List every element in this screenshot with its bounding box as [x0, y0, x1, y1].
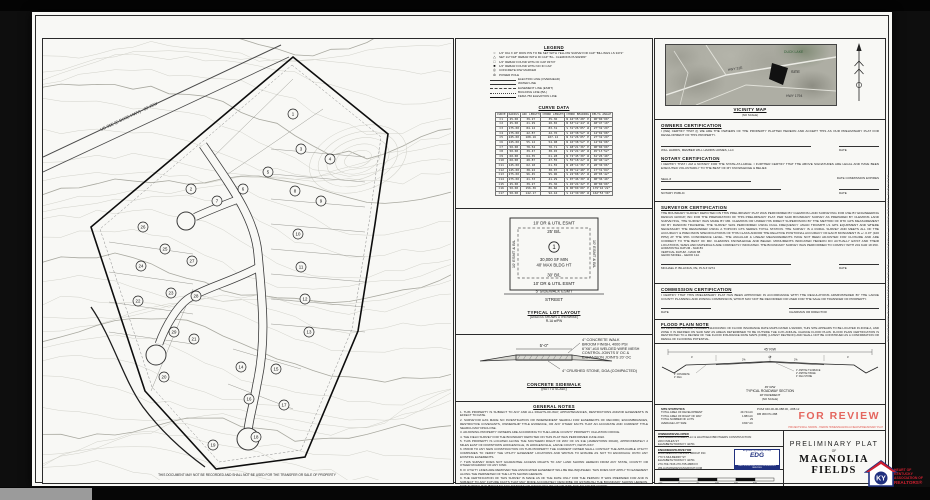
svg-text:25: 25: [163, 247, 168, 252]
thick-line-sample: [490, 97, 516, 98]
legend-symbol-item: ⊘POWER POLE: [490, 74, 644, 78]
stats-row: AVERAGE LOT SIZE0.847 AC: [661, 422, 753, 426]
lot-side-left: 10' ESMT & B/L: [511, 239, 516, 268]
edge-vertical-text: PRELIMINARY PLAT - MAGNOLIA FIELDS - HOD…: [886, 38, 890, 478]
lot-circle: 13: [304, 327, 314, 337]
section-sidewalk: 5'-0" 4" CONCRETE WALK BROOM FINISH, 400…: [456, 335, 652, 402]
sidewalk-detail-diagram: 5'-0" 4" CONCRETE WALK BROOM FINISH, 400…: [456, 337, 652, 381]
lot-circle: 10: [293, 229, 303, 239]
legend-line-item: WATER LINE: [490, 82, 644, 86]
lot-circle: 28: [191, 291, 201, 301]
svg-text:14: 14: [239, 365, 244, 370]
notary-date-line: DATE: [839, 189, 879, 195]
svg-text:16: 16: [247, 397, 252, 402]
north-arrow-icon: [853, 43, 865, 105]
lot-circle: 6: [238, 184, 248, 194]
legend-line-item: EASEMENT LINE (ESMT): [490, 87, 644, 91]
map-note: THIS DOCUMENT MAY NOT BE RECORDED AND SH…: [158, 473, 337, 477]
sidewalk-note-bottom: 4" CRUSHED STONE, DGA (COMPACTED): [562, 369, 638, 373]
curve-cell: S 12°30'08" W: [565, 191, 591, 196]
owners-signature-line: WILL HARRIS, MEMBER WILL HARRIS HOMES, L…: [661, 146, 811, 152]
section-commission-cert: COMMISSION CERTIFICATION I CERTIFY THAT …: [655, 284, 885, 320]
sheet-edge-strip: PRELIMINARY PLAT - MAGNOLIA FIELDS - HOD…: [886, 38, 892, 482]
commission-date-line: DATE: [661, 308, 711, 314]
commission-chairman-line: CHAIRMAN OR DIRECTOR: [789, 308, 879, 314]
sidewalk-dim: 5'-0": [540, 343, 549, 348]
section-stats: SITE STATISTICS TOTAL AREA OF DEVELOPMEN…: [655, 405, 885, 431]
site-plan-panel: US 31E (E DIXIE HWY) - 80' R/W: [42, 38, 454, 484]
vicinity-site-label: SITE: [791, 69, 800, 74]
roadway-left-note-1: 4" CONCRETE: [674, 374, 690, 376]
vicinity-caption: VICINITY MAP: [665, 107, 835, 112]
lot-circle: 17: [279, 400, 289, 410]
owners-cert-body: I (WE) CERTIFY THAT (I) WE ARE THE OWNER…: [661, 129, 879, 137]
lot-circle: 16: [244, 394, 254, 404]
roadway-dim-right: 4': [847, 355, 849, 359]
lot-rear-bl: 30' B/L: [547, 272, 561, 277]
lot-circle: 3: [296, 144, 306, 154]
surveyor-cert-body: THE BOUNDARY SURVEY DEPICTED ON THIS PRE…: [661, 211, 879, 247]
lot-circle: 18: [251, 432, 261, 442]
lot-circle: 7: [212, 196, 222, 206]
legend-item-text: FEMA 750 ELEVATION LINE: [518, 95, 557, 99]
roadway-note-3: 4" DGA STONE: [796, 375, 813, 378]
lot-side-right: 10' ESMT & B/L: [592, 240, 597, 269]
lot-circle: 5: [263, 167, 273, 177]
for-review-stamp: FOR REVIEW: [798, 410, 880, 422]
roadway-dim-center: 18': [768, 355, 772, 359]
solid-line-sample: [490, 80, 516, 81]
lot-circle: 11: [296, 262, 306, 272]
realtors-ky-badge: KY: [876, 476, 886, 483]
section-vicinity: SITE DUCK LAKE HWY 31E HWY 1794 VICINITY: [655, 39, 885, 120]
legend-line-item: BUILDING LINE (B/L): [490, 91, 644, 95]
section-roadway: 45' R/W 4' 18' 4' 2% 2% 1" ASPHALT SURFA…: [655, 344, 885, 405]
roadway-note-2: 2" ASPHALT BASE: [796, 372, 816, 375]
sidewalk-note-4: CONTROL JOINTS 5' OC &: [582, 351, 630, 355]
center-column: LEGEND ○1/2" DIA X 18" IRON PIN TO BE SE…: [455, 38, 653, 484]
commission-cert-title: COMMISSION CERTIFICATION: [661, 287, 879, 292]
vicinity-road2-label: HWY 1794: [786, 94, 802, 98]
surveyor-datum-3: GEOID MODEL - GEOID 12A: [661, 254, 879, 258]
svg-text:13: 13: [307, 330, 312, 335]
curve-data-table: CURVERADIUSARC LENGTHCHORD LENGTHCHORD B…: [495, 112, 613, 196]
general-note: 6. PRIOR TO ANY NEW CONSTRUCTION ON THIS…: [460, 448, 648, 459]
site-plan-drawing: US 31E (E DIXIE HWY) - 80' R/W: [43, 39, 451, 480]
roadway-section-diagram: 45' R/W 4' 18' 4' 2% 2% 1" ASPHALT SURFA…: [656, 345, 884, 385]
owners-cert-title: OWNERS CERTIFICATION: [661, 123, 879, 128]
vicinity-aerial-image: SITE DUCK LAKE HWY 31E HWY 1794: [665, 44, 837, 106]
lot-front-bl: 25' B/L: [547, 229, 561, 234]
lot-circle: 15: [271, 364, 281, 374]
svg-text:29: 29: [172, 330, 177, 335]
vicinity-subcaption: (NO SCALE): [665, 113, 835, 117]
general-notes-title: GENERAL NOTES: [456, 404, 652, 409]
section-title-block: OWNER/DEVELOPER WILL HARRIS HOMES, LLC &…: [655, 431, 885, 486]
realtors-text-line3: REALTORS®: [894, 480, 930, 486]
notary-expires-label: DATE COMMISSION EXPIRES: [837, 176, 879, 182]
svg-text:23: 23: [169, 291, 174, 296]
lot-circle: 26: [138, 222, 148, 232]
lot-circle: 4: [325, 154, 335, 164]
bottom-black-bar: [0, 487, 930, 500]
curve-cell: C17: [495, 191, 507, 196]
plat-title-line1: PRELIMINARY PLAT: [783, 441, 885, 448]
roadway-slope-left: 2%: [742, 359, 746, 362]
realtors-text-line1: HEART OF KENTUCKY: [894, 468, 930, 476]
surveyor-cert-title: SURVEYOR CERTIFICATION: [661, 205, 879, 210]
lot-circle: 25: [160, 244, 170, 254]
graphic-scale-bar: -100'0'50'100'200'400': [658, 477, 776, 484]
svg-text:28: 28: [194, 294, 199, 299]
lot-top-esmt: 10' DR & UTIL ESMT: [533, 220, 575, 225]
curve-cell: 50.00: [507, 191, 520, 196]
flood-note-body: AS INDICATED ON MAP NUMBER 21123C0150C O…: [661, 327, 879, 342]
section-owners-cert: OWNERS CERTIFICATION I (WE) CERTIFY THAT…: [655, 120, 885, 202]
lot-circle: 8: [290, 186, 300, 196]
commission-cert-body: I CERTIFY THAT THIS PRELIMINARY PLAT HAS…: [661, 293, 879, 301]
notary-cert-title: NOTARY CERTIFICATION: [661, 156, 879, 161]
lot-circle: 29: [169, 327, 179, 337]
lot-circle: 22: [133, 296, 143, 306]
section-flood-note: FLOOD PLAIN NOTE AS INDICATED ON MAP NUM…: [655, 320, 885, 344]
stats-rows: TOTAL AREA OF DEVELOPMENT29.744 ACTOTAL …: [661, 411, 753, 426]
lot-bottom-esmt: 10' DR & UTIL ESMT: [533, 281, 575, 286]
highway-label: US 31E (E DIXIE HWY) - 80' R/W: [99, 101, 158, 132]
svg-text:18: 18: [254, 435, 259, 440]
lot-circle: 12: [300, 294, 310, 304]
lot-circle: 2: [186, 184, 196, 194]
general-note: 1. THIS PROPERTY IS SUBJECT TO ANY AND A…: [460, 411, 648, 419]
lot-circle: 24: [136, 261, 146, 271]
lot-sidewalk-esmt: 5' SIDEWALK ESMT: [536, 288, 573, 293]
vicinity-lake-label: DUCK LAKE: [784, 50, 804, 54]
svg-text:22: 22: [136, 299, 141, 304]
lot-circle: 27: [187, 256, 197, 266]
lot-layout-diagram: 10' DR & UTIL ESMT 25' B/L 10' ESMT & B/…: [456, 212, 652, 308]
surveyor-date-line: DATE: [839, 264, 879, 270]
section-legend-curve: LEGEND ○1/2" DIA X 18" IRON PIN TO BE SE…: [456, 39, 652, 209]
svg-text:20: 20: [162, 375, 167, 380]
svg-text:19: 19: [211, 443, 216, 448]
svg-text:26: 26: [141, 225, 146, 230]
sidewalk-subtitle: (NOT TO SCALE): [456, 387, 652, 391]
svg-text:200': 200': [734, 483, 739, 484]
roadway-rw-dim: 45' R/W: [764, 348, 777, 352]
sidewalk-note-3: 6"X6"-#10 WELDED WIRE MESH: [582, 347, 640, 351]
svg-text:17: 17: [282, 403, 287, 408]
notary-cert-body: I CERTIFY THAT I AM A NOTARY FOR THE STA…: [661, 162, 879, 170]
curve-cell: 92.44: [541, 191, 565, 196]
sidewalk-note-5: EXPANSION JOINTS 20' OC: [582, 356, 631, 360]
svg-text:12: 12: [303, 297, 308, 302]
lot-circle: 1: [288, 109, 298, 119]
general-note: 2. SURVEYOR HAS MADE NO INVESTIGATION OR…: [460, 419, 648, 430]
roadway-left-note-2: 4" DGA: [674, 376, 682, 379]
legend-item-text: POWER POLE: [499, 74, 519, 78]
vicinity-roads: SITE DUCK LAKE HWY 31E HWY 1794: [666, 45, 836, 105]
roadway-dim-left: 4': [691, 355, 693, 359]
screenshot-canvas: US 31E (E DIXIE HWY) - 80' R/W: [0, 0, 930, 500]
dashed-line-sample: [490, 88, 516, 89]
file-path-text: PROJECTS/WILL HARRIS - HARRIS HOMES/MAGN…: [788, 426, 883, 429]
lot-circle: 9: [316, 196, 326, 206]
svg-text:10: 10: [296, 232, 301, 237]
property-boundary: [91, 57, 388, 469]
owners-date-line: DATE: [839, 146, 879, 152]
lot-circle: 23: [166, 288, 176, 298]
general-notes-list: 1. THIS PROPERTY IS SUBJECT TO ANY AND A…: [460, 411, 648, 487]
dashdot-line-sample: [490, 93, 516, 94]
svg-text:50': 50': [697, 483, 700, 484]
lot-layout-sub2: R-1A w/PW: [456, 319, 652, 323]
vicinity-road1-label: HWY 31E: [728, 66, 744, 72]
surveyor-signature-line: MICHAEL P. BILLINGS, PE, PLS # 3274: [661, 264, 791, 270]
lot-circle: 19: [208, 440, 218, 450]
roadway-slope-right: 2%: [794, 359, 798, 362]
bottom-gray-strip: [0, 488, 92, 500]
lot-circle: 14: [236, 362, 246, 372]
edg-logo-bottom-text: LAND SURVEYING & CIVIL ENGINEERING SERVI…: [735, 465, 779, 469]
realtors-watermark-logo: KY HEART OF KENTUCKY ASSOCIATION OF REAL…: [864, 452, 930, 498]
vicinity-site-polygon: [769, 63, 788, 85]
lot-circle: 21: [189, 334, 199, 344]
curve-row: C1750.00142.1792.44S 12°30'08" W162°53'3…: [495, 191, 612, 196]
legend-list: ○1/2" DIA X 18" IRON PIN TO BE SET WITH …: [490, 52, 644, 99]
lot-circle: 20: [159, 372, 169, 382]
curve-cell: 142.17: [521, 191, 541, 196]
power-symbol-icon: ⊘: [490, 74, 499, 78]
roadway-note-1: 1" ASPHALT SURFACE: [796, 369, 821, 372]
lot-street-label: STREET: [545, 297, 563, 302]
section-general-notes: GENERAL NOTES 1. THIS PROPERTY IS SUBJEC…: [456, 402, 652, 486]
svg-text:15: 15: [274, 367, 279, 372]
edg-company-logo: Engineering Design Group EDG LAND SURVEY…: [734, 449, 780, 470]
realtors-house-icon: KY: [864, 460, 898, 490]
section-surveyor-cert: SURVEYOR CERTIFICATION THE BOUNDARY SURV…: [655, 202, 885, 284]
legend-line-item: ELECTRIC LINE (OVERHEAD): [490, 78, 644, 82]
svg-text:0': 0': [678, 483, 680, 484]
svg-text:400': 400': [753, 483, 758, 484]
lot-number: 1: [552, 245, 556, 251]
notary-public-line: NOTARY PUBLIC: [661, 189, 781, 195]
svg-text:21: 21: [192, 337, 197, 342]
svg-text:24: 24: [139, 264, 144, 269]
lot-height-max: 40' MAX BLDG HT: [536, 262, 571, 267]
general-note: 9. THE CERTIFICATION OF THIS SURVEY IS M…: [460, 477, 648, 486]
roadway-caption-4: (NO SCALE): [655, 397, 885, 401]
lot-area-min: 30,000 SF MIN: [540, 257, 568, 262]
plat-sheet: US 31E (E DIXIE HWY) - 80' R/W: [32, 12, 892, 486]
svg-text:11: 11: [299, 265, 304, 270]
legend-line-item: FEMA 750 ELEVATION LINE: [490, 95, 644, 99]
edg-logo-monogram: EDG: [735, 453, 779, 460]
top-black-bar: [0, 0, 930, 11]
notary-seal-line: SEAL #: [661, 176, 751, 182]
curve-data-title: CURVE DATA: [456, 105, 652, 110]
svg-text:-100': -100': [658, 483, 663, 484]
legend-title: LEGEND: [456, 45, 652, 50]
curve-cell: 162°53'30": [590, 191, 612, 196]
section-lot-layout: 10' DR & UTIL ESMT 25' B/L 10' ESMT & B/…: [456, 209, 652, 335]
svg-text:27: 27: [190, 259, 195, 264]
solid-line-sample: [490, 84, 516, 85]
right-column: SITE DUCK LAKE HWY 31E HWY 1794 VICINITY: [654, 38, 886, 484]
svg-text:100': 100': [715, 483, 720, 484]
